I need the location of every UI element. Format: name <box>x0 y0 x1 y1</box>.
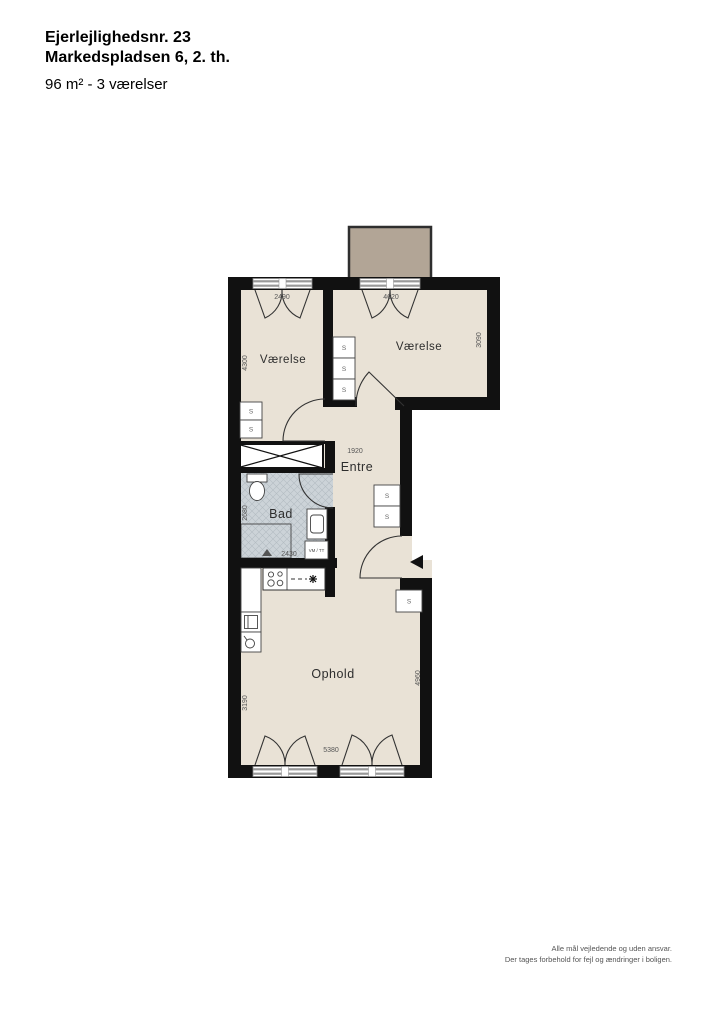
wall-entre-left-a <box>325 441 335 473</box>
size-rooms: 96 m² - 3 værelser <box>45 75 230 94</box>
window-top-left <box>253 279 312 289</box>
unit-number: Ejerlejlighedsnr. 23 <box>45 28 230 48</box>
disclaimer-line2: Der tages forbehold for fejl og ændringe… <box>505 955 672 966</box>
dim-4620: 4620 <box>383 294 399 301</box>
bath-sink <box>307 509 327 539</box>
fridge <box>241 612 261 632</box>
dim-2490: 2490 <box>274 294 290 301</box>
room-vaerelse2: Værelse <box>396 341 442 353</box>
kitchen-cabinet <box>241 568 261 612</box>
closet-label: S <box>249 409 254 416</box>
washer-label: VM / TT <box>309 548 325 553</box>
wall-right-upper <box>487 277 500 410</box>
wall-bath-top <box>237 468 325 473</box>
window-bottom-right <box>340 767 404 777</box>
room-entre: Entre <box>341 460 373 474</box>
shaft-crossbox <box>237 444 323 468</box>
closet-label: S <box>407 599 412 606</box>
wall-bath-bottom <box>228 558 337 568</box>
dim-2430: 2430 <box>281 551 297 558</box>
dim-3190: 3190 <box>242 695 249 711</box>
room-bad: Bad <box>269 507 293 521</box>
disclaimer: Alle mål vejledende og uden ansvar. Der … <box>505 944 672 965</box>
closet-label: S <box>342 387 347 394</box>
dim-1920: 1920 <box>347 448 363 455</box>
closet-label: S <box>342 345 347 352</box>
window-bottom-left <box>253 767 317 777</box>
wall-between-rooms <box>323 290 333 400</box>
closet-label: S <box>385 493 390 500</box>
toilet-tank <box>247 474 267 482</box>
room-ophold: Ophold <box>311 667 354 681</box>
dim-2680: 2680 <box>242 505 249 521</box>
extractor-icon <box>309 575 317 583</box>
wall-left <box>228 277 241 778</box>
closet-label: S <box>249 427 254 434</box>
floorplan-page: Ejerlejlighedsnr. 23 Markedspladsen 6, 2… <box>0 0 724 1024</box>
floor-top-rooms <box>235 283 493 408</box>
appliance <box>241 632 261 652</box>
closet-label: S <box>342 366 347 373</box>
disclaimer-line1: Alle mål vejledende og uden ansvar. <box>505 944 672 955</box>
window-balcony-door <box>360 279 420 289</box>
room-vaerelse1: Værelse <box>260 354 306 366</box>
dim-4300: 4300 <box>242 355 249 371</box>
balcony <box>349 227 431 280</box>
toilet-bowl <box>250 482 265 501</box>
plan-header: Ejerlejlighedsnr. 23 Markedspladsen 6, 2… <box>45 28 230 94</box>
address: Markedspladsen 6, 2. th. <box>45 48 230 68</box>
dim-3090: 3090 <box>476 332 483 348</box>
dim-4960: 4960 <box>415 670 422 686</box>
wall-entre-right <box>400 407 412 536</box>
closet-label: S <box>385 514 390 521</box>
dim-5380: 5380 <box>323 747 339 754</box>
floorplan-drawing: S S S S S S S S VM / TT <box>0 0 724 1024</box>
